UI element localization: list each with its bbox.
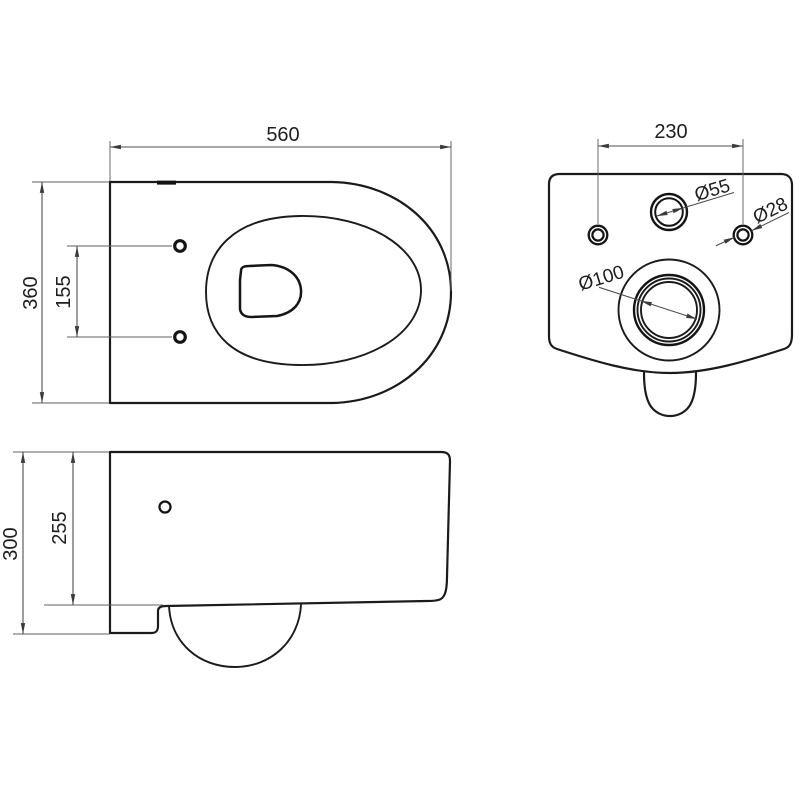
technical-drawing-canvas: 560 360 155 (0, 0, 800, 800)
seat-hinge-hole-upper (175, 241, 186, 252)
toilet-dimension-drawing: 560 360 155 (0, 0, 800, 800)
dim-label-seat-hole-spacing: 155 (53, 275, 75, 308)
dimension-seat-hole-spacing: 155 (53, 246, 172, 337)
water-spot (240, 265, 301, 317)
dim-label-outlet-diameter: Ø100 (576, 262, 627, 296)
top-view: 560 360 155 (20, 124, 451, 403)
toilet-body-side-outline (110, 452, 450, 633)
dimension-mount-hole-spacing: 230 (598, 121, 743, 224)
mount-hole-left (589, 226, 608, 245)
dim-label-mount-hole-spacing: 230 (654, 121, 687, 143)
seat-hinge-hole-lower (175, 332, 186, 343)
outlet-pipe-tongue (644, 373, 696, 416)
mount-hole-left-inner (592, 229, 603, 240)
mount-hole-right (734, 226, 753, 245)
leader-arrow-left (716, 237, 735, 246)
toilet-body-top-outline (110, 182, 451, 403)
seat-hinge-hole-side (160, 502, 171, 513)
dimension-body-height: 255 (44, 452, 163, 605)
rear-view: 230 Ø55 Ø28 Ø100 (549, 121, 792, 416)
diameter-line (657, 208, 684, 216)
seat-opening (206, 216, 421, 365)
diameter-line (641, 301, 697, 319)
dimension-mount-hole-diameter: Ø28 (716, 194, 791, 246)
dim-label-width: 560 (266, 124, 299, 146)
dim-label-depth: 360 (20, 276, 42, 309)
dim-label-overall-height: 300 (0, 527, 22, 560)
dim-label-body-height: 255 (49, 511, 71, 544)
dim-label-mount-hole-diameter: Ø28 (750, 194, 791, 229)
side-view: 300 255 (0, 452, 450, 667)
outlet-pipe-side (169, 605, 301, 667)
dim-label-inlet-diameter: Ø55 (692, 175, 732, 206)
dimension-inlet-diameter: Ø55 (657, 175, 734, 216)
mount-hole-right-inner (737, 229, 748, 240)
